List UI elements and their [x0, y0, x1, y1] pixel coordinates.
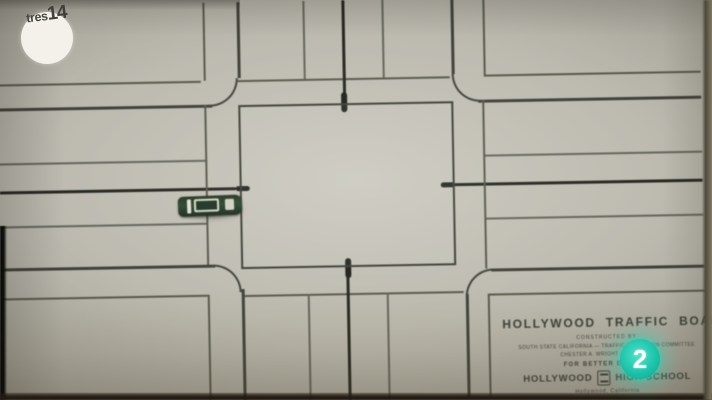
sidewalk-line [484, 71, 701, 77]
tv-frame: HOLLYWOOD TRAFFIC BOARD CONSTRUCTED BY S… [0, 0, 712, 400]
curb-line [491, 265, 704, 271]
curb-line [242, 289, 247, 400]
center-line-east [455, 179, 703, 187]
block-corner-arc-southwest [213, 264, 242, 293]
car-windshield [187, 199, 191, 213]
tres14-text-small: tres [25, 9, 48, 25]
sidewalk-line [0, 81, 201, 87]
sidewalk-line [208, 295, 212, 400]
curb-line [236, 2, 240, 78]
center-line-south [346, 277, 351, 400]
school-name-left: HOLLYWOOD [523, 373, 592, 385]
lane-line [484, 151, 702, 157]
traffic-board-diagram: HOLLYWOOD TRAFFIC BOARD CONSTRUCTED BY S… [0, 0, 712, 400]
curb-line [466, 294, 470, 398]
lane-line [0, 223, 206, 229]
block-corner-arc-northwest [210, 78, 239, 107]
school-crest-icon [597, 370, 610, 385]
crosswalk-line-south [244, 291, 464, 297]
tres14-program-logo: tres 14 [21, 12, 73, 64]
toy-car [178, 194, 243, 216]
panel-motto: FOR BETTER DRIVING [503, 360, 711, 370]
curb-line [450, 0, 454, 74]
block-corner-arc-northeast [452, 74, 481, 103]
lane-line [381, 0, 384, 77]
curb-line [0, 105, 212, 111]
tres14-text-big: 14 [46, 2, 68, 26]
sidewalk-line [482, 0, 485, 76]
sidewalk-line [488, 294, 492, 398]
lane-line [387, 292, 391, 399]
lane-line [0, 160, 205, 166]
lane-line [485, 214, 703, 220]
center-line-west [0, 187, 236, 194]
channel-2-digit: 2 [633, 344, 647, 375]
sidewalk-line [488, 290, 705, 296]
tres14-logo-text: tres 14 [25, 2, 68, 29]
block-corner-arc-southeast [465, 268, 494, 297]
curb-line [1, 265, 215, 271]
center-line-north [341, 0, 346, 93]
lane-line [302, 1, 305, 79]
curb-line [478, 96, 701, 103]
credit-panel: HOLLYWOOD TRAFFIC BOARD CONSTRUCTED BY S… [502, 314, 711, 396]
lane-line [308, 294, 312, 400]
channel-2-bug: 2 [620, 339, 660, 379]
car-rear-window [225, 199, 234, 210]
panel-school-name: HOLLYWOOD HIGH SCHOOL [503, 369, 711, 388]
crosswalk-line-west [204, 105, 209, 265]
sidewalk-line [2, 295, 208, 301]
intersection-box [238, 101, 456, 269]
car-roof [194, 198, 219, 212]
panel-title: HOLLYWOOD TRAFFIC BOARD [502, 314, 710, 332]
panel-credit-line: CHESTER A. WRIGHT · DIRECTOR [503, 350, 711, 360]
sidewalk-line [202, 3, 205, 81]
